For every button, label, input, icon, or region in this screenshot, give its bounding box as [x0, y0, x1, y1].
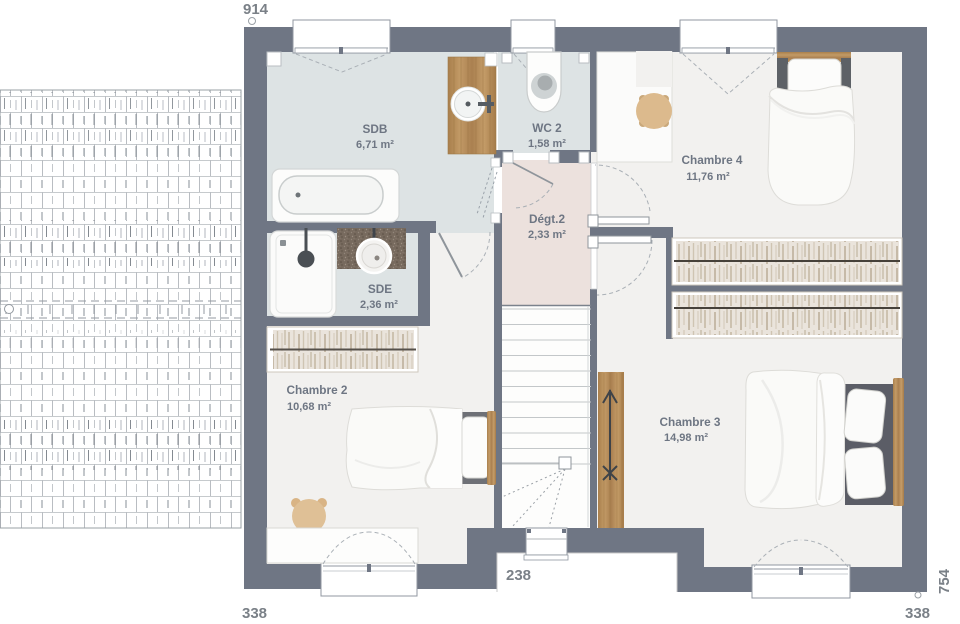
svg-text:Chambre 4: Chambre 4 [682, 153, 743, 167]
svg-text:6,71 m²: 6,71 m² [356, 139, 394, 151]
svg-text:754: 754 [936, 568, 953, 594]
svg-text:914: 914 [243, 1, 269, 18]
svg-text:Dégt.2: Dégt.2 [529, 212, 565, 226]
svg-text:10,68 m²: 10,68 m² [287, 401, 331, 413]
svg-text:Chambre 3: Chambre 3 [660, 415, 721, 429]
svg-text:338: 338 [242, 605, 267, 622]
svg-text:Chambre 2: Chambre 2 [287, 383, 348, 397]
svg-text:1,58 m²: 1,58 m² [528, 138, 566, 150]
svg-text:SDE: SDE [368, 282, 392, 296]
svg-text:2,33 m²: 2,33 m² [528, 229, 566, 241]
svg-text:SDB: SDB [363, 122, 388, 136]
svg-text:14,98 m²: 14,98 m² [664, 432, 708, 444]
svg-text:WC 2: WC 2 [532, 121, 562, 135]
svg-text:11,76 m²: 11,76 m² [686, 171, 730, 183]
svg-text:2,36 m²: 2,36 m² [360, 299, 398, 311]
svg-text:338: 338 [905, 605, 930, 622]
svg-text:238: 238 [506, 567, 531, 584]
